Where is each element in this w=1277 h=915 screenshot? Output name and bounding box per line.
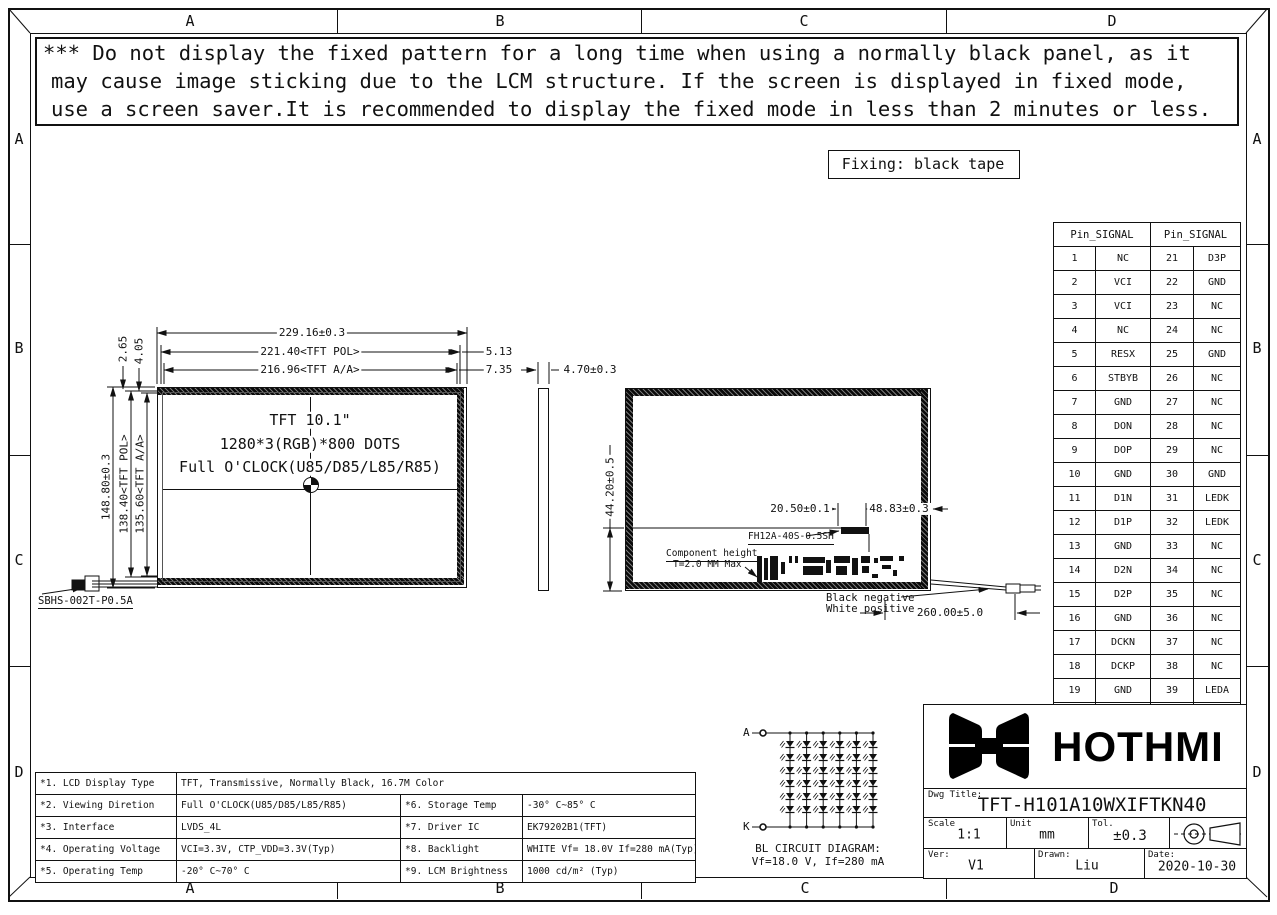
pin-cell: GND [1194,343,1241,367]
grid-label-bottom-d: D [1109,879,1118,897]
dim-outline-width: 229.16±0.3 [277,327,347,339]
grid-label-bottom-b: B [495,879,504,897]
pin-cell: 12 [1054,511,1096,535]
grid-label-top-c: C [799,12,808,30]
pin-cell: 19 [1054,679,1096,703]
pin-cell: 34 [1151,559,1194,583]
pin-cell: STBYB [1096,367,1151,391]
title-block-line [924,788,1246,789]
pin-cell: 7 [1054,391,1096,415]
pin-row: 7GND27NC [1054,391,1241,415]
spec-cell: EK79202B1(TFT) [523,817,696,839]
pin-cell: NC [1194,607,1241,631]
pin-row: 15D2P35NC [1054,583,1241,607]
hothmi-logo-icon [949,707,1029,785]
center-mark-icon [303,477,319,493]
band-divider [946,877,947,899]
pin-cell: 39 [1151,679,1194,703]
pin-cell: 32 [1151,511,1194,535]
pin-cell: GND [1096,391,1151,415]
pin-cell: 25 [1151,343,1194,367]
title-block-line [1006,817,1007,848]
pin-signal-table: Pin_SIGNAL Pin_SIGNAL 1NC21D3P2VCI22GND3… [1053,222,1241,727]
grid-label-bottom-c: C [800,879,809,897]
title-block-line [1144,848,1145,878]
pin-cell: 35 [1151,583,1194,607]
ver-value: V1 [968,859,984,874]
pin-cell: GND [1194,271,1241,295]
title-block-line [1034,848,1035,878]
pin-cell: 8 [1054,415,1096,439]
spec-cell: *7. Driver IC [401,817,523,839]
grid-label-left-d: D [14,763,23,781]
pin-cell: D1N [1096,487,1151,511]
spec-cell: *6. Storage Temp [401,795,523,817]
pin-cell: 24 [1151,319,1194,343]
front-text-viewing: Full O'CLOCK(U85/D85/L85/R85) [177,459,443,476]
pin-cell: DCKN [1096,631,1151,655]
spec-cell: VCI=3.3V, CTP_VDD=3.3V(Typ) [177,839,401,861]
pin-cell: NC [1194,439,1241,463]
pin-cell: LEDA [1194,679,1241,703]
component-height-note-2: T=2.0 MM Max [673,560,742,571]
band-divider [1246,244,1268,245]
band-divider [337,8,338,33]
spec-cell: -30° C~85° C [523,795,696,817]
pin-cell: 3 [1054,295,1096,319]
dim-top-offset-2: 4.05 [133,336,146,367]
dim-aa-height: 135.60<TFT A/A> [134,432,147,535]
pin-cell: 16 [1054,607,1096,631]
pin-cell: NC [1096,319,1151,343]
pin-cell: NC [1194,535,1241,559]
pin-row: 10GND30GND [1054,463,1241,487]
title-block-line [1088,817,1089,848]
front-text-size: TFT 10.1" [267,412,352,429]
back-tape-right [921,389,928,589]
pin-cell: NC [1194,583,1241,607]
pin-row: 5RESX25GND [1054,343,1241,367]
pin-cell: 23 [1151,295,1194,319]
pin-cell: 38 [1151,655,1194,679]
dim-wire-length: 260.00±5.0 [915,607,985,619]
title-block-line [924,848,1246,849]
tol-label: Tol. [1092,819,1114,829]
pin-cell: NC [1194,655,1241,679]
title-block: HOTHMI Dwg Title: TFT-H101A10WXIFTKN40 S… [923,704,1247,879]
spec-cell: *8. Backlight [401,839,523,861]
unit-label: Unit [1010,819,1032,829]
drawn-label: Drawn: [1038,850,1071,860]
grid-label-bottom-a: A [185,879,194,897]
bl-caption-2: Vf=18.0 V, If=280 mA [750,856,886,868]
pin-cell: 31 [1151,487,1194,511]
dim-top-offset-1: 2.65 [117,334,130,365]
grid-label-left-a: A [14,130,23,148]
pin-cell: 37 [1151,631,1194,655]
spec-table: *1. LCD Display TypeTFT, Transmissive, N… [35,772,696,883]
drawn-value: Liu [1075,859,1098,874]
dim-aa-width: 216.96<TFT A/A> [258,364,361,376]
pin-cell: VCI [1096,271,1151,295]
pin-row: 12D1P32LEDK [1054,511,1241,535]
pin-row: 11D1N31LEDK [1054,487,1241,511]
pin-cell: 10 [1054,463,1096,487]
pin-cell: NC [1194,391,1241,415]
grid-label-right-b: B [1252,339,1261,357]
pin-cell: LEDK [1194,487,1241,511]
pin-row: 18DCKP38NC [1054,655,1241,679]
bl-caption-1: BL CIRCUIT DIAGRAM: [753,843,883,855]
grid-label-right-c: C [1252,551,1261,569]
brand-name: HOTHMI [1032,715,1244,779]
drawing-sheet: A B C D A B C D A B C D A B C D *** Do n… [0,0,1277,915]
band-divider [1246,666,1268,667]
scale-value: 1:1 [957,828,980,843]
spec-cell: 1000 cd/m² (Typ) [523,861,696,883]
pin-cell: DON [1096,415,1151,439]
spec-cell: Full O'CLOCK(U85/D85/L85/R85) [177,795,401,817]
pin-cell: DOP [1096,439,1151,463]
warning-line-3: use a screen saver.It is recommended to … [51,97,1211,121]
band-divider [641,8,642,33]
spec-cell: *1. LCD Display Type [36,773,177,795]
pin-row: 6STBYB26NC [1054,367,1241,391]
warning-line-2: may cause image sticking due to the LCM … [51,69,1186,93]
title-block-line [924,817,1246,818]
pin-table-header: Pin_SIGNAL [1054,223,1151,247]
wire-polarity-note-2: White positive [826,603,915,615]
grid-label-left-c: C [14,551,23,569]
pin-row: 2VCI22GND [1054,271,1241,295]
pin-cell: GND [1194,463,1241,487]
pin-cell: 29 [1151,439,1194,463]
pin-row: 13GND33NC [1054,535,1241,559]
pin-cell: NC [1194,631,1241,655]
pin-cell: NC [1194,295,1241,319]
pin-table-header-row: Pin_SIGNAL Pin_SIGNAL [1054,223,1241,247]
warning-line-1: *** Do not display the fixed pattern for… [43,41,1191,65]
pin-cell: NC [1194,415,1241,439]
pin-cell: 11 [1054,487,1096,511]
pin-cell: 4 [1054,319,1096,343]
bl-anode-label: A [743,727,750,740]
pin-cell: NC [1194,367,1241,391]
wire-connector-label: SBHS-002T-P0.5A [38,595,133,609]
pin-cell: 15 [1054,583,1096,607]
side-view-panel [538,388,549,591]
pin-cell: 27 [1151,391,1194,415]
pin-cell: 6 [1054,367,1096,391]
dim-right-offset-1: 5.13 [484,346,515,358]
pin-cell: DCKP [1096,655,1151,679]
dim-pol-width: 221.40<TFT POL> [258,346,361,358]
back-tape-bottom [626,582,928,589]
pin-cell: 33 [1151,535,1194,559]
grid-label-left-b: B [14,339,23,357]
pin-cell: D2P [1096,583,1151,607]
pin-cell: 2 [1054,271,1096,295]
pin-cell: GND [1096,535,1151,559]
band-divider [8,455,30,456]
band-divider [1246,455,1268,456]
dwg-title: TFT-H101A10WXIFTKN40 [978,794,1207,816]
dim-thickness: 4.70±0.3 [562,364,619,376]
tol-value: ±0.3 [1113,828,1147,844]
spec-cell: TFT, Transmissive, Normally Black, 16.7M… [177,773,696,795]
pin-row: 3VCI23NC [1054,295,1241,319]
pin-cell: NC [1194,559,1241,583]
bl-cathode-label: K [743,821,750,834]
pin-cell: GND [1096,607,1151,631]
front-text-resolution: 1280*3(RGB)*800 DOTS [218,436,403,453]
spec-row: *5. Operating Temp-20° C~70° C*9. LCM Br… [36,861,696,883]
pin-row: 19GND39LEDA [1054,679,1241,703]
pin-cell: NC [1194,319,1241,343]
grid-label-top-d: D [1107,12,1116,30]
fpc-connector-label: FH12A-40S-0.5SH [748,532,834,545]
pin-cell: 5 [1054,343,1096,367]
pin-cell: 17 [1054,631,1096,655]
pin-cell: 9 [1054,439,1096,463]
pin-table-header: Pin_SIGNAL [1151,223,1241,247]
pin-cell: 36 [1151,607,1194,631]
dim-connector-right: 48.83±0.3 [867,503,931,515]
grid-label-top-a: A [185,12,194,30]
band-divider [8,666,30,667]
pin-cell: 22 [1151,271,1194,295]
pin-cell: NC [1096,247,1151,271]
pin-cell: D3P [1194,247,1241,271]
spec-row: *4. Operating VoltageVCI=3.3V, CTP_VDD=3… [36,839,696,861]
pin-cell: 28 [1151,415,1194,439]
unit-value: mm [1039,828,1055,843]
projection-symbol-icon [1172,821,1246,848]
scale-label: Scale [928,819,955,829]
back-tape-top [626,389,928,396]
warning-note-box: *** Do not display the fixed pattern for… [35,37,1239,126]
pin-row: 9DOP29NC [1054,439,1241,463]
pin-row: 17DCKN37NC [1054,631,1241,655]
date-value: 2020-10-30 [1158,860,1236,875]
pin-cell: 21 [1151,247,1194,271]
pin-row: 14D2N34NC [1054,559,1241,583]
spec-cell: LVDS_4L [177,817,401,839]
pin-cell: 26 [1151,367,1194,391]
pin-cell: GND [1096,463,1151,487]
pin-cell: D2N [1096,559,1151,583]
dim-outline-height: 148.80±0.3 [100,452,113,522]
spec-cell: *3. Interface [36,817,177,839]
spec-row: *3. InterfaceLVDS_4L*7. Driver ICEK79202… [36,817,696,839]
dim-connector-offset: 20.50±0.1 [768,503,832,515]
grid-label-top-b: B [495,12,504,30]
title-block-line [1169,817,1170,848]
spec-cell: *4. Operating Voltage [36,839,177,861]
pin-cell: GND [1096,679,1151,703]
pin-row: 1NC21D3P [1054,247,1241,271]
spec-row: *2. Viewing DiretionFull O'CLOCK(U85/D85… [36,795,696,817]
band-divider [946,8,947,33]
date-label: Date: [1148,850,1175,860]
spec-cell: *2. Viewing Diretion [36,795,177,817]
pin-row: 8DON28NC [1054,415,1241,439]
pin-cell: VCI [1096,295,1151,319]
dwg-title-label: Dwg Title: [928,790,982,800]
dim-back-height: 44.20±0.5 [604,455,617,519]
pin-cell: D1P [1096,511,1151,535]
pin-cell: 30 [1151,463,1194,487]
spec-cell: -20° C~70° C [177,861,401,883]
bl-circuit-diagram [742,718,887,838]
pin-row: 16GND36NC [1054,607,1241,631]
pin-cell: LEDK [1194,511,1241,535]
pin-row: 4NC24NC [1054,319,1241,343]
back-tape-left [626,389,633,589]
pin-cell: RESX [1096,343,1151,367]
pin-cell: 14 [1054,559,1096,583]
spec-cell: *5. Operating Temp [36,861,177,883]
fixing-note: Fixing: black tape [840,156,1007,173]
pin-cell: 1 [1054,247,1096,271]
pin-cell: 18 [1054,655,1096,679]
spec-row: *1. LCD Display TypeTFT, Transmissive, N… [36,773,696,795]
grid-label-right-d: D [1252,763,1261,781]
dim-pol-height: 138.40<TFT POL> [118,432,131,535]
spec-cell: WHITE Vf= 18.0V If=280 mA(Typ) [523,839,696,861]
pin-cell: 13 [1054,535,1096,559]
dim-right-offset-2: 7.35 [484,364,515,376]
grid-label-right-a: A [1252,130,1261,148]
ver-label: Ver: [928,850,950,860]
band-divider [8,244,30,245]
